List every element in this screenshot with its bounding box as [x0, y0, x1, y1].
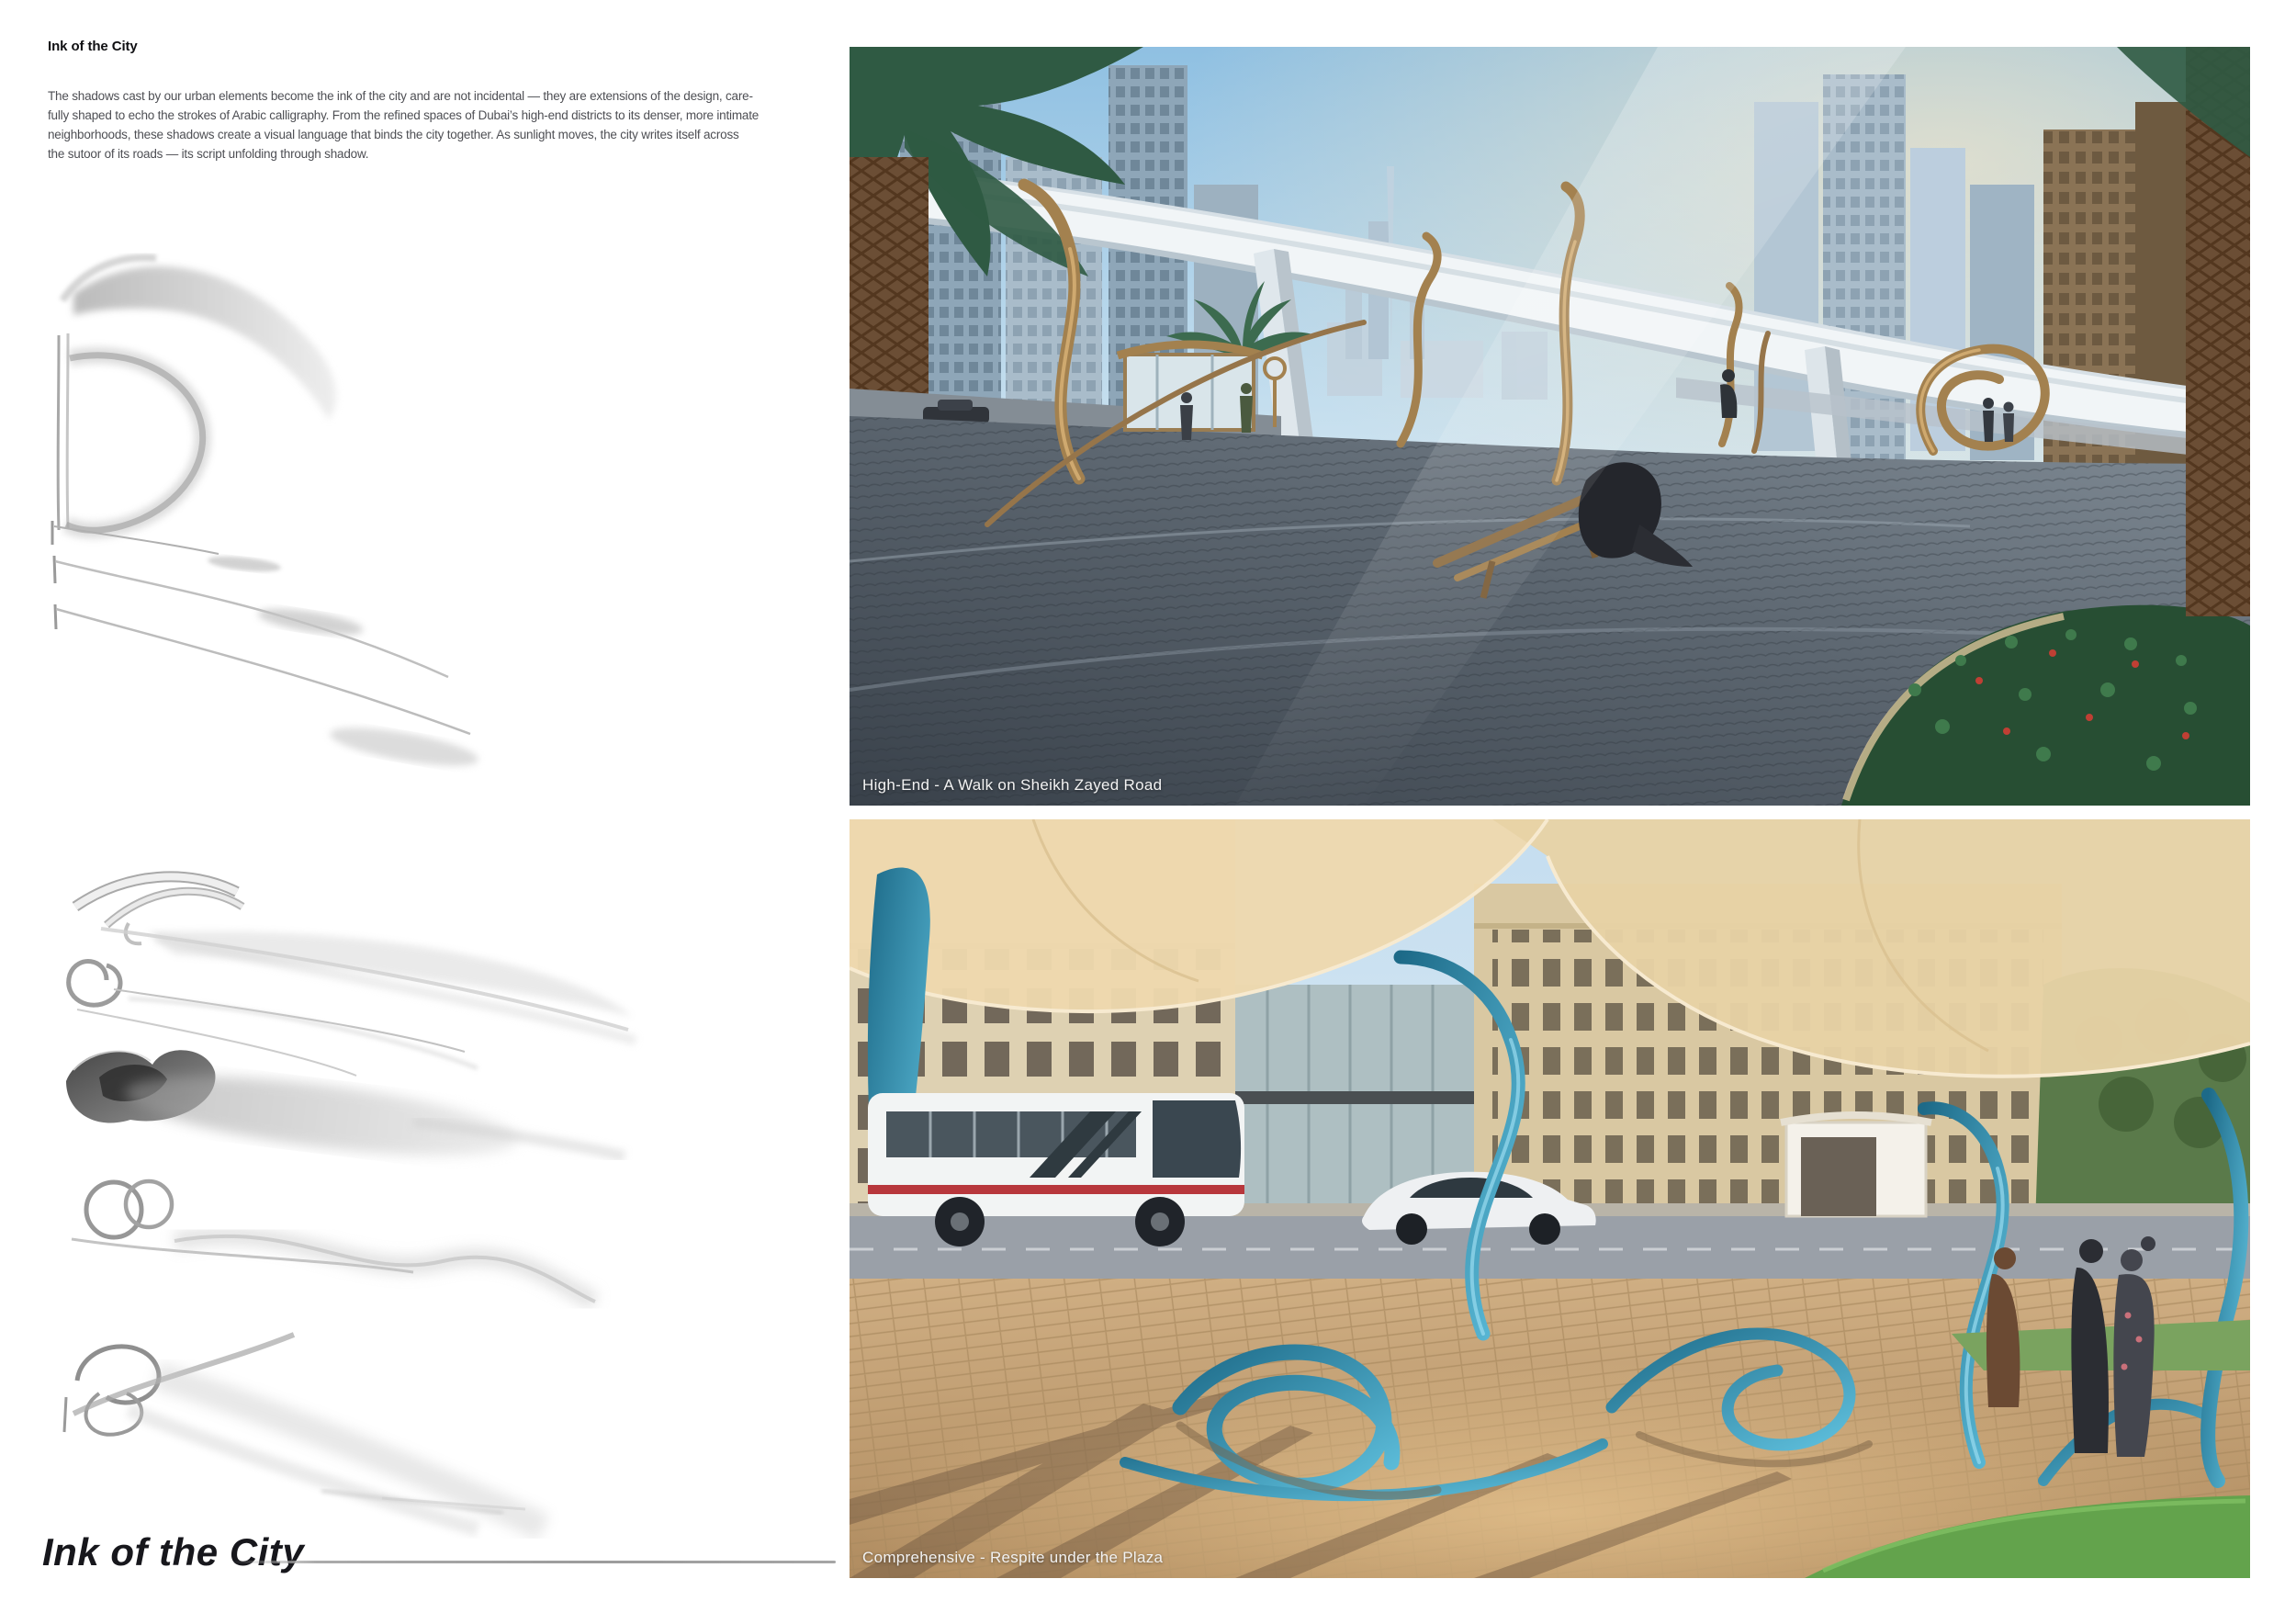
- high-end-scene: [850, 47, 2250, 806]
- render-high-end: High-End - A Walk on Sheikh Zayed Road: [850, 47, 2250, 806]
- intro-heading: Ink of the City: [48, 39, 138, 54]
- calligraphy-sketch-3: [54, 556, 448, 677]
- render-caption-high-end: High-End - A Walk on Sheikh Zayed Road: [862, 776, 1162, 795]
- calligraphy-sketch-5: [75, 876, 636, 1041]
- calligraphy-sketch-1: [58, 257, 336, 530]
- render-comprehensive: Comprehensive - Respite under the Plaza: [850, 819, 2250, 1578]
- intro-line: the sutoor of its roads — its script unf…: [48, 144, 759, 164]
- calligraphy-sketch-8: [72, 1181, 595, 1302]
- calligraphy-sketch-4: [55, 604, 480, 773]
- intro-line: The shadows cast by our urban elements b…: [48, 86, 759, 106]
- presentation-board: Ink of the City The shadows cast by our …: [0, 0, 2296, 1624]
- shadow-sketch-column: [18, 197, 661, 1539]
- comprehensive-scene: [850, 819, 2250, 1578]
- kiosk: [1781, 1115, 1931, 1216]
- calligraphy-sketch-7: [66, 1050, 625, 1171]
- footer-title: Ink of the City: [42, 1530, 304, 1574]
- render-caption-comprehensive: Comprehensive - Respite under the Plaza: [862, 1549, 1163, 1567]
- intro-line: neighborhoods, these shadows create a vi…: [48, 125, 759, 144]
- intro-line: fully shaped to echo the strokes of Arab…: [48, 106, 759, 125]
- intro-paragraph: The shadows cast by our urban elements b…: [48, 86, 759, 164]
- calligraphy-sketch-9: [64, 1335, 544, 1529]
- footer-rule: [231, 1561, 836, 1563]
